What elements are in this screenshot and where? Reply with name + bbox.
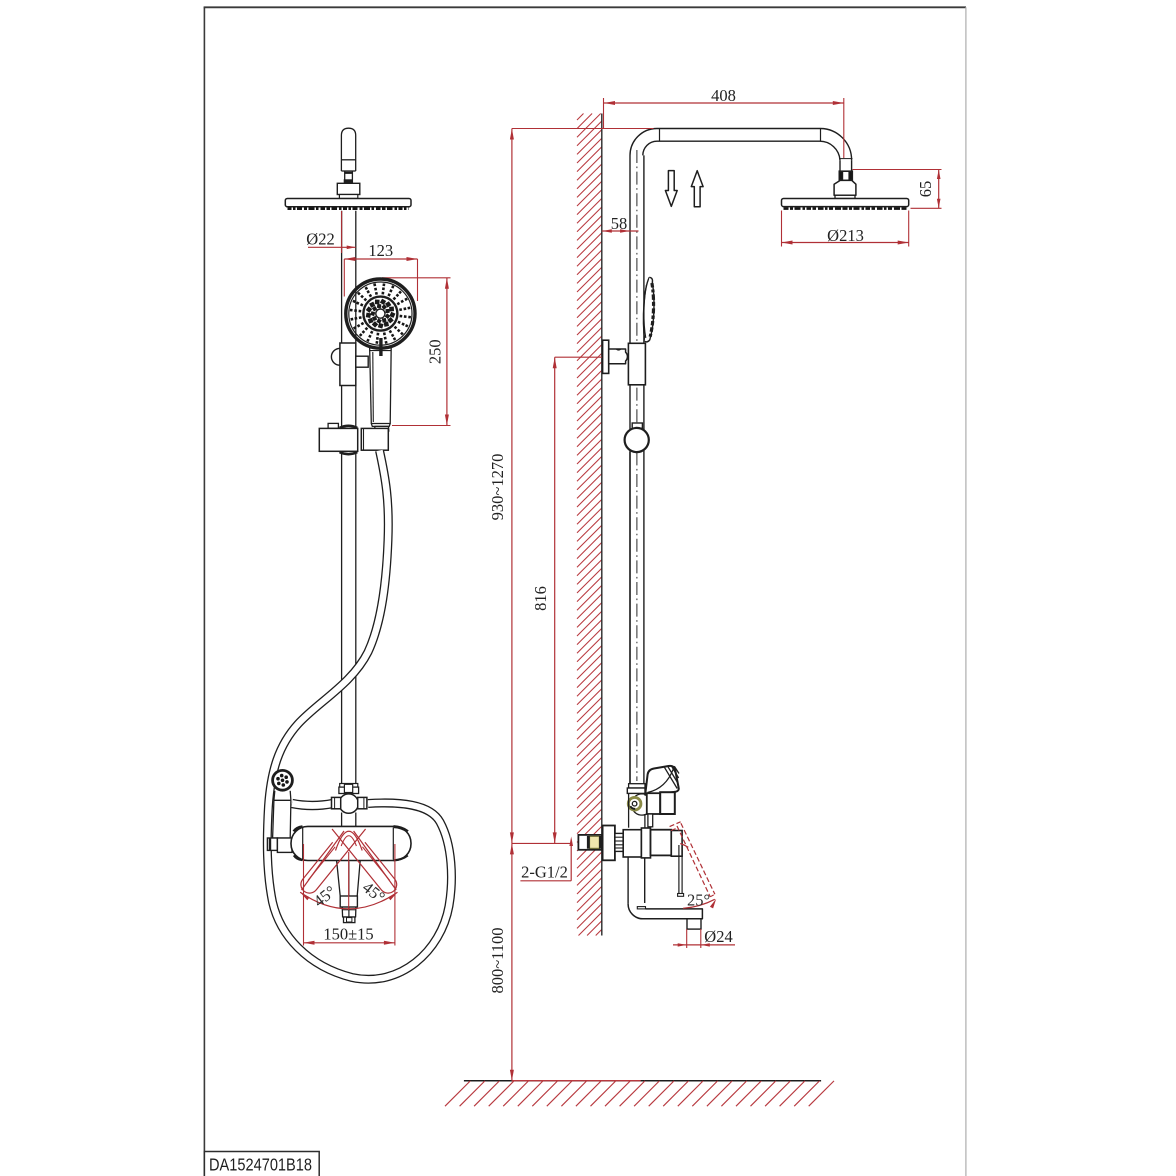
svg-text:816: 816 (531, 586, 550, 611)
svg-text:150±15: 150±15 (323, 925, 373, 944)
svg-text:408: 408 (711, 86, 736, 105)
svg-text:DA1524701B18: DA1524701B18 (209, 1154, 312, 1174)
svg-text:2-G1/2: 2-G1/2 (521, 863, 568, 882)
svg-text:930~1270: 930~1270 (488, 454, 507, 521)
svg-text:Ø213: Ø213 (827, 226, 864, 245)
svg-text:58: 58 (611, 214, 628, 233)
svg-text:25°: 25° (687, 891, 710, 910)
svg-text:Ø24: Ø24 (704, 927, 732, 946)
svg-text:800~1100: 800~1100 (488, 927, 507, 993)
svg-text:65: 65 (916, 181, 935, 198)
svg-text:123: 123 (368, 241, 393, 260)
svg-text:250: 250 (426, 339, 445, 364)
svg-text:Ø22: Ø22 (306, 229, 334, 248)
